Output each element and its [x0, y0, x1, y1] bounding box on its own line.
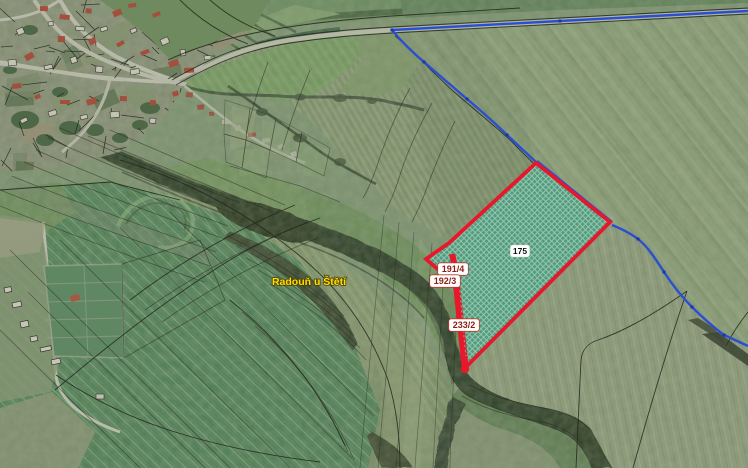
svg-text:191/4: 191/4: [442, 264, 465, 274]
svg-text:233/2: 233/2: [453, 320, 476, 330]
svg-text:175: 175: [513, 246, 527, 256]
svg-text:192/3: 192/3: [434, 276, 457, 286]
svg-text:Radouň u Štětí: Radouň u Štětí: [272, 275, 347, 288]
